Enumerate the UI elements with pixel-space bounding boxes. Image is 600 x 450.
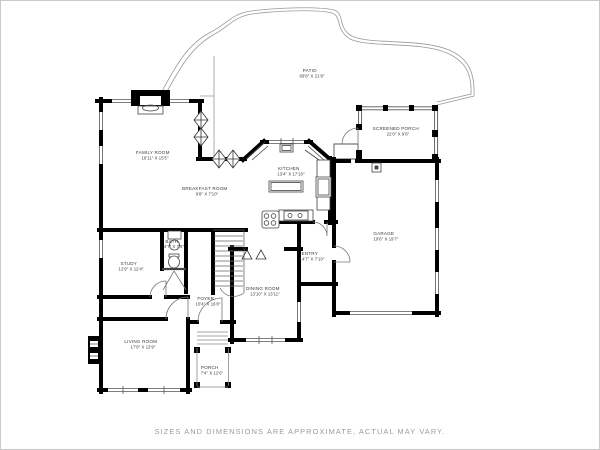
room-label-breakfast-room: BREAKFAST ROOM 9'8" X 7'10"	[182, 177, 232, 197]
disclaimer-text: SIZES AND DIMENSIONS ARE APPROXIMATE, AC…	[155, 427, 446, 436]
room-label-porch: PORCH 7'4" X 12'6"	[201, 356, 224, 376]
arch-marker-icon	[242, 250, 266, 259]
room-label-living-room: LIVING ROOM 17'8" X 13'9"	[124, 330, 161, 350]
column-diamond-icon	[194, 111, 208, 129]
room-label-screened-porch: SCREENED PORCH 22'0" X 9'6"	[373, 117, 424, 137]
patio-curve-inner	[165, 11, 471, 102]
room-label-kitchen: KITCHEN 13'4" X 17'10"	[277, 157, 305, 177]
kitchen-sink-inner	[282, 146, 291, 151]
fireplace	[138, 105, 163, 114]
patio-outline	[161, 8, 474, 157]
patio-curve-outer	[161, 8, 474, 105]
step-lines	[197, 332, 228, 344]
range-burner	[271, 214, 276, 219]
range-burner	[264, 214, 269, 219]
room-label-patio: PATIO 69'8" X 21'9"	[300, 59, 325, 79]
stair-outline	[213, 230, 244, 293]
bath-sink-icon	[169, 256, 180, 268]
fireplace-hearth	[138, 106, 163, 114]
column-diamond-icon	[226, 150, 240, 168]
cooktop-burner	[298, 214, 302, 218]
room-label-family-room: FAMILY ROOM 19'11" X 15'5"	[136, 141, 174, 161]
floor-plan-page: PATIO 69'8" X 21'9" FAMILY ROOM 19'11" X…	[0, 0, 600, 450]
stair-treads	[214, 236, 243, 286]
room-label-entry: ENTRY 14'7" X 7'10"	[300, 242, 325, 262]
cooktop-burner	[288, 214, 292, 218]
range-burner	[271, 221, 276, 226]
water-heater-core	[375, 166, 378, 169]
porch-landing	[334, 144, 358, 159]
fridge-inner	[318, 179, 329, 195]
room-label-dining-room: DINING ROOM 13'10" X 13'11"	[246, 277, 284, 297]
kitchen-fixtures	[246, 142, 331, 228]
range-burner	[264, 221, 269, 226]
kitchen-island-top	[271, 183, 301, 191]
room-label-garage: GARAGE 19'6" X 19'7"	[373, 222, 399, 242]
room-label-study: STUDY 12'9" X 12'4"	[119, 252, 144, 272]
floor-plan-canvas: PATIO 69'8" X 21'9" FAMILY ROOM 19'11" X…	[0, 0, 600, 450]
garage-fixtures	[372, 163, 381, 172]
room-label-foyer: FOYER 10'4" X 16'8"	[196, 287, 221, 307]
front-porch-steps	[197, 332, 229, 387]
column-diamond-icon	[194, 128, 208, 146]
range-icon	[262, 211, 279, 228]
